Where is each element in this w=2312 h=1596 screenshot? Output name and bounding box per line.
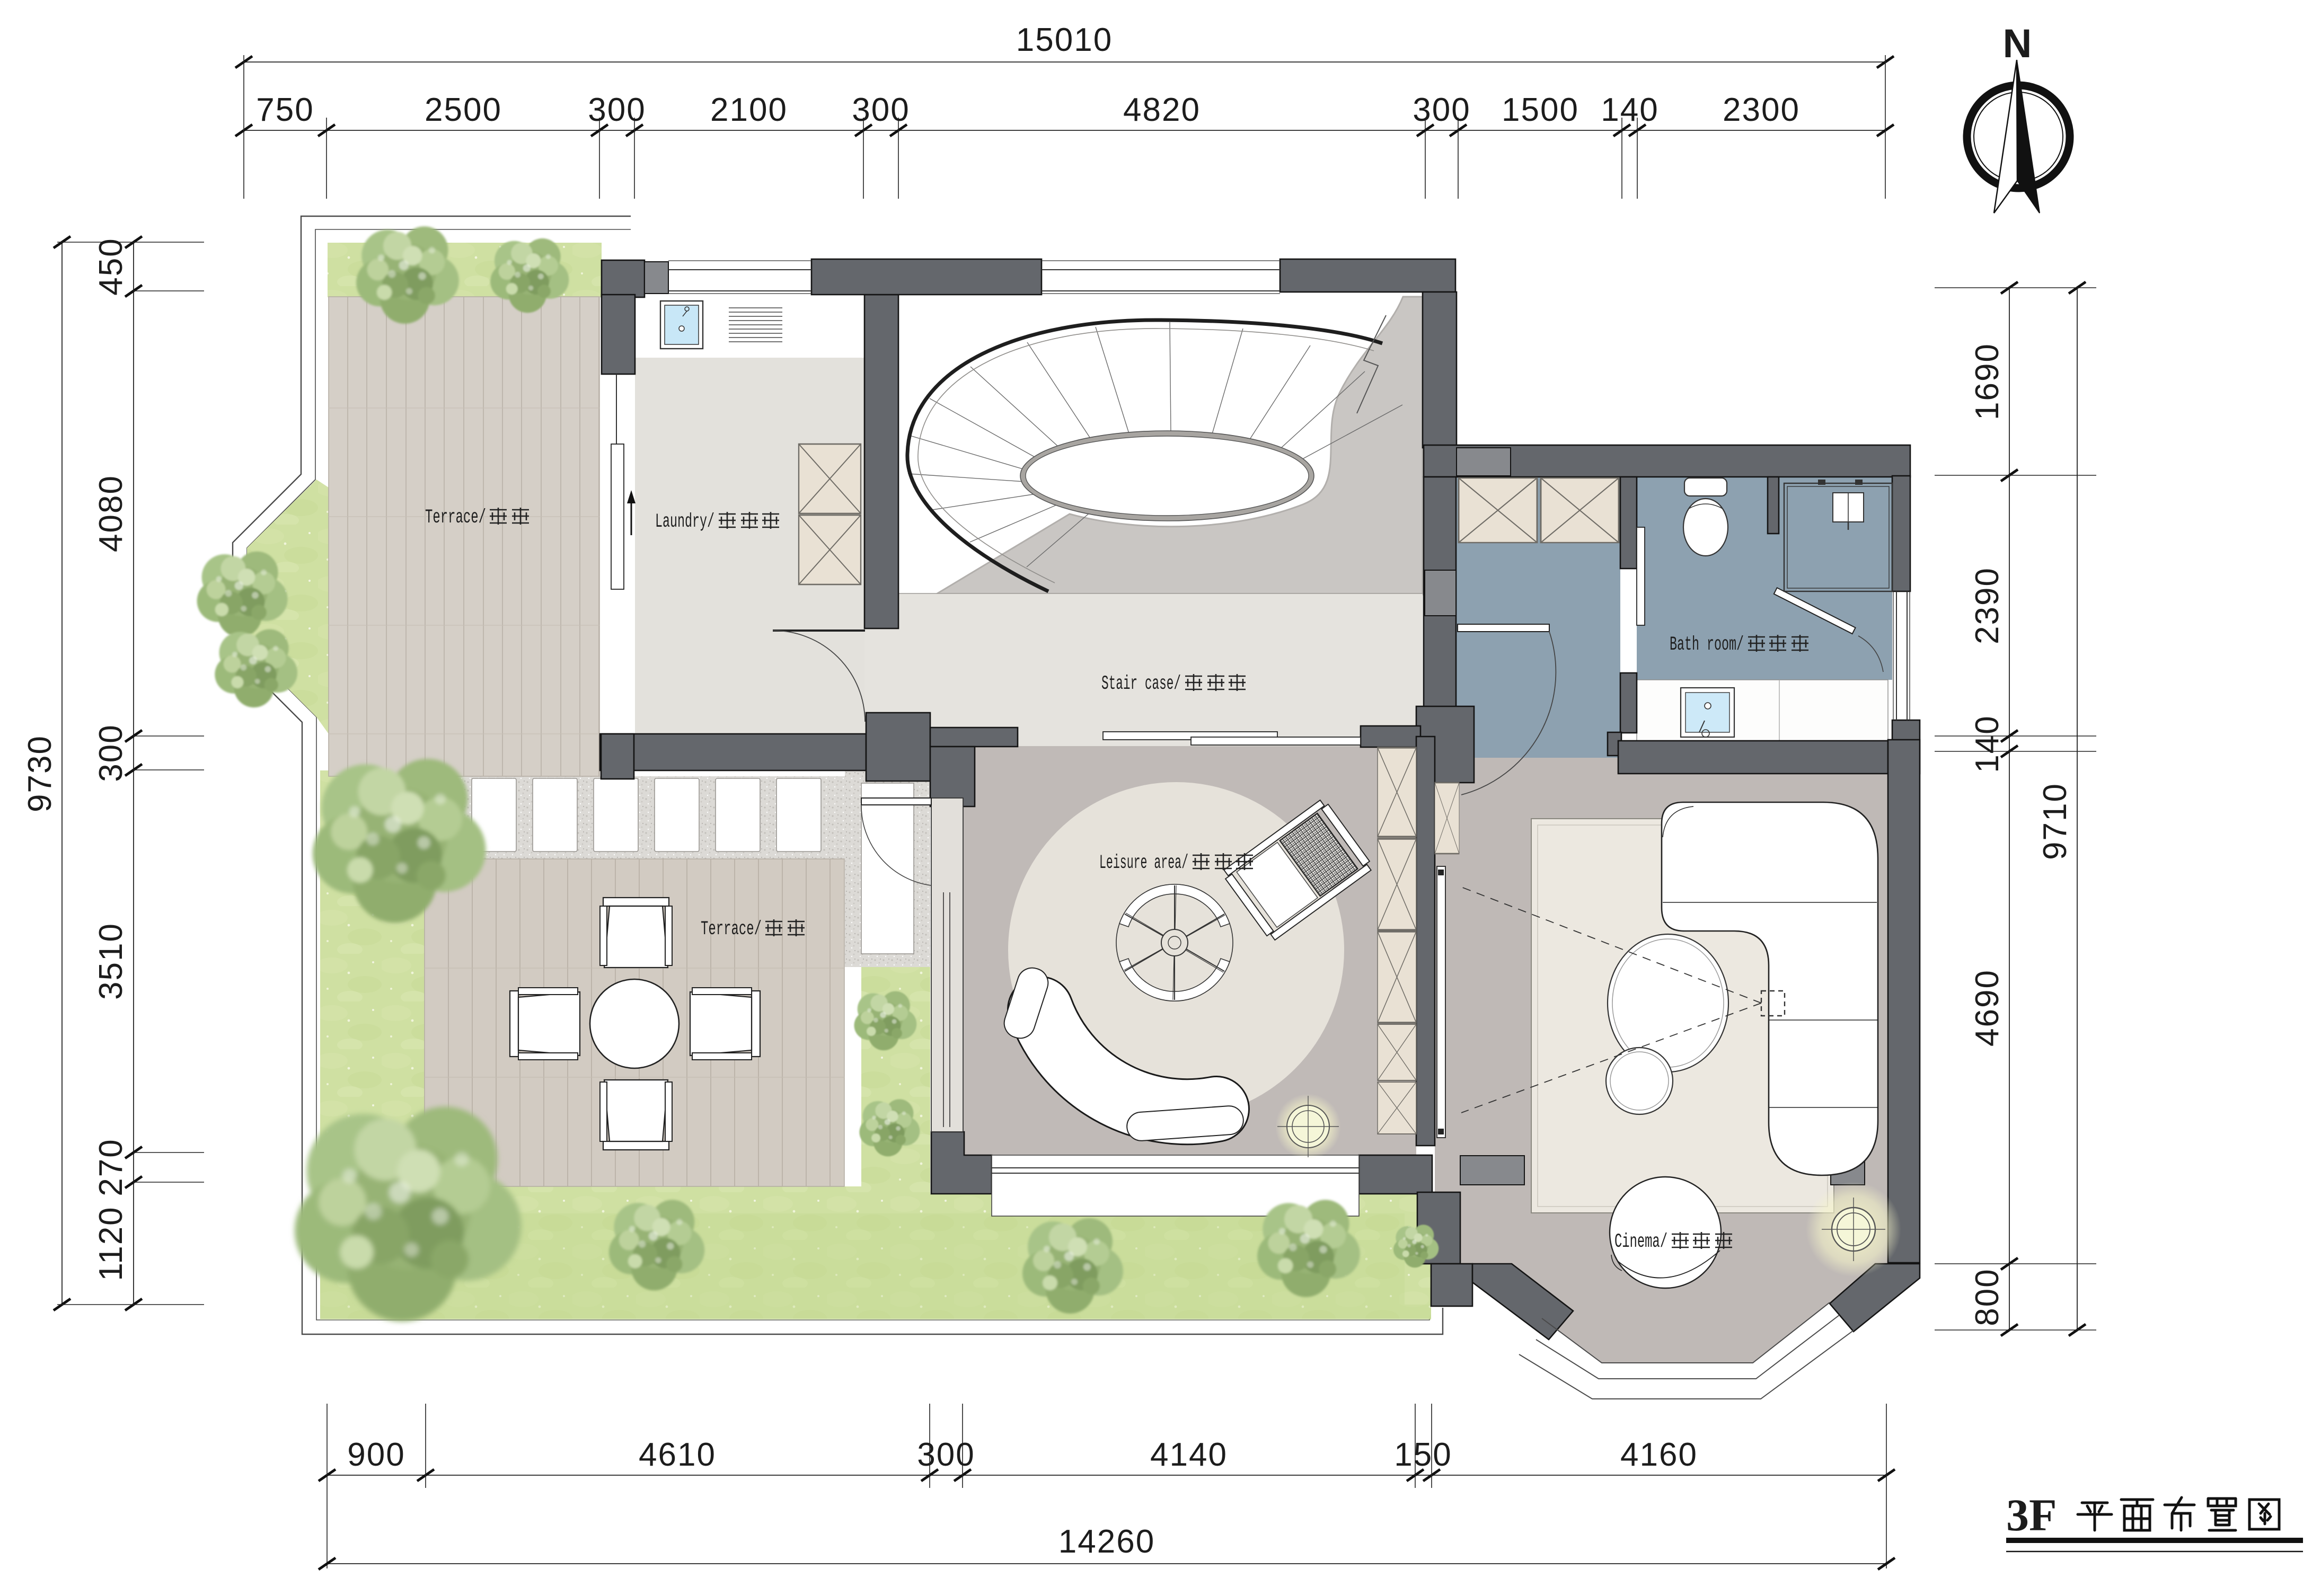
svg-text:4690: 4690	[1969, 969, 2006, 1047]
svg-text:4610: 4610	[639, 1437, 716, 1473]
svg-text:300: 300	[917, 1437, 975, 1473]
svg-text:9730: 9730	[22, 735, 58, 812]
svg-text:3510: 3510	[93, 923, 129, 1000]
svg-text:Bath room/: Bath room/	[1670, 634, 1744, 656]
svg-text:900: 900	[347, 1437, 405, 1473]
svg-text:15010: 15010	[1016, 22, 1113, 58]
svg-text:300: 300	[93, 724, 129, 782]
svg-text:2100: 2100	[710, 92, 788, 128]
svg-text:2500: 2500	[425, 92, 502, 128]
svg-text:750: 750	[256, 92, 314, 128]
svg-text:140: 140	[1601, 92, 1658, 128]
svg-text:2390: 2390	[1969, 567, 2006, 644]
svg-text:Cinema/: Cinema/	[1614, 1231, 1667, 1253]
svg-text:1120: 1120	[93, 1206, 129, 1281]
svg-text:140: 140	[1969, 715, 2006, 773]
svg-text:1690: 1690	[1969, 343, 2006, 420]
svg-text:150: 150	[1394, 1437, 1452, 1473]
svg-text:2300: 2300	[1723, 92, 1800, 128]
svg-text:270: 270	[93, 1138, 129, 1196]
svg-text:Terrace/: Terrace/	[425, 507, 486, 529]
svg-text:450: 450	[93, 237, 129, 295]
svg-text:Stair case/: Stair case/	[1101, 673, 1181, 695]
svg-text:800: 800	[1969, 1268, 2006, 1326]
svg-text:4160: 4160	[1620, 1437, 1698, 1473]
svg-text:1500: 1500	[1502, 92, 1579, 128]
svg-text:Terrace/: Terrace/	[701, 918, 762, 941]
svg-text:4080: 4080	[93, 475, 129, 552]
svg-text:300: 300	[852, 92, 910, 128]
svg-text:3F: 3F	[2006, 1489, 2057, 1540]
svg-text:300: 300	[588, 92, 646, 128]
svg-text:9710: 9710	[2037, 783, 2073, 860]
svg-text:N: N	[2003, 21, 2032, 66]
svg-text:4140: 4140	[1150, 1437, 1228, 1473]
svg-text:Leisure area/: Leisure area/	[1099, 852, 1188, 874]
svg-text:300: 300	[1413, 92, 1470, 128]
svg-text:4820: 4820	[1123, 92, 1201, 128]
svg-text:14260: 14260	[1058, 1523, 1155, 1560]
svg-text:Laundry/: Laundry/	[655, 511, 714, 533]
